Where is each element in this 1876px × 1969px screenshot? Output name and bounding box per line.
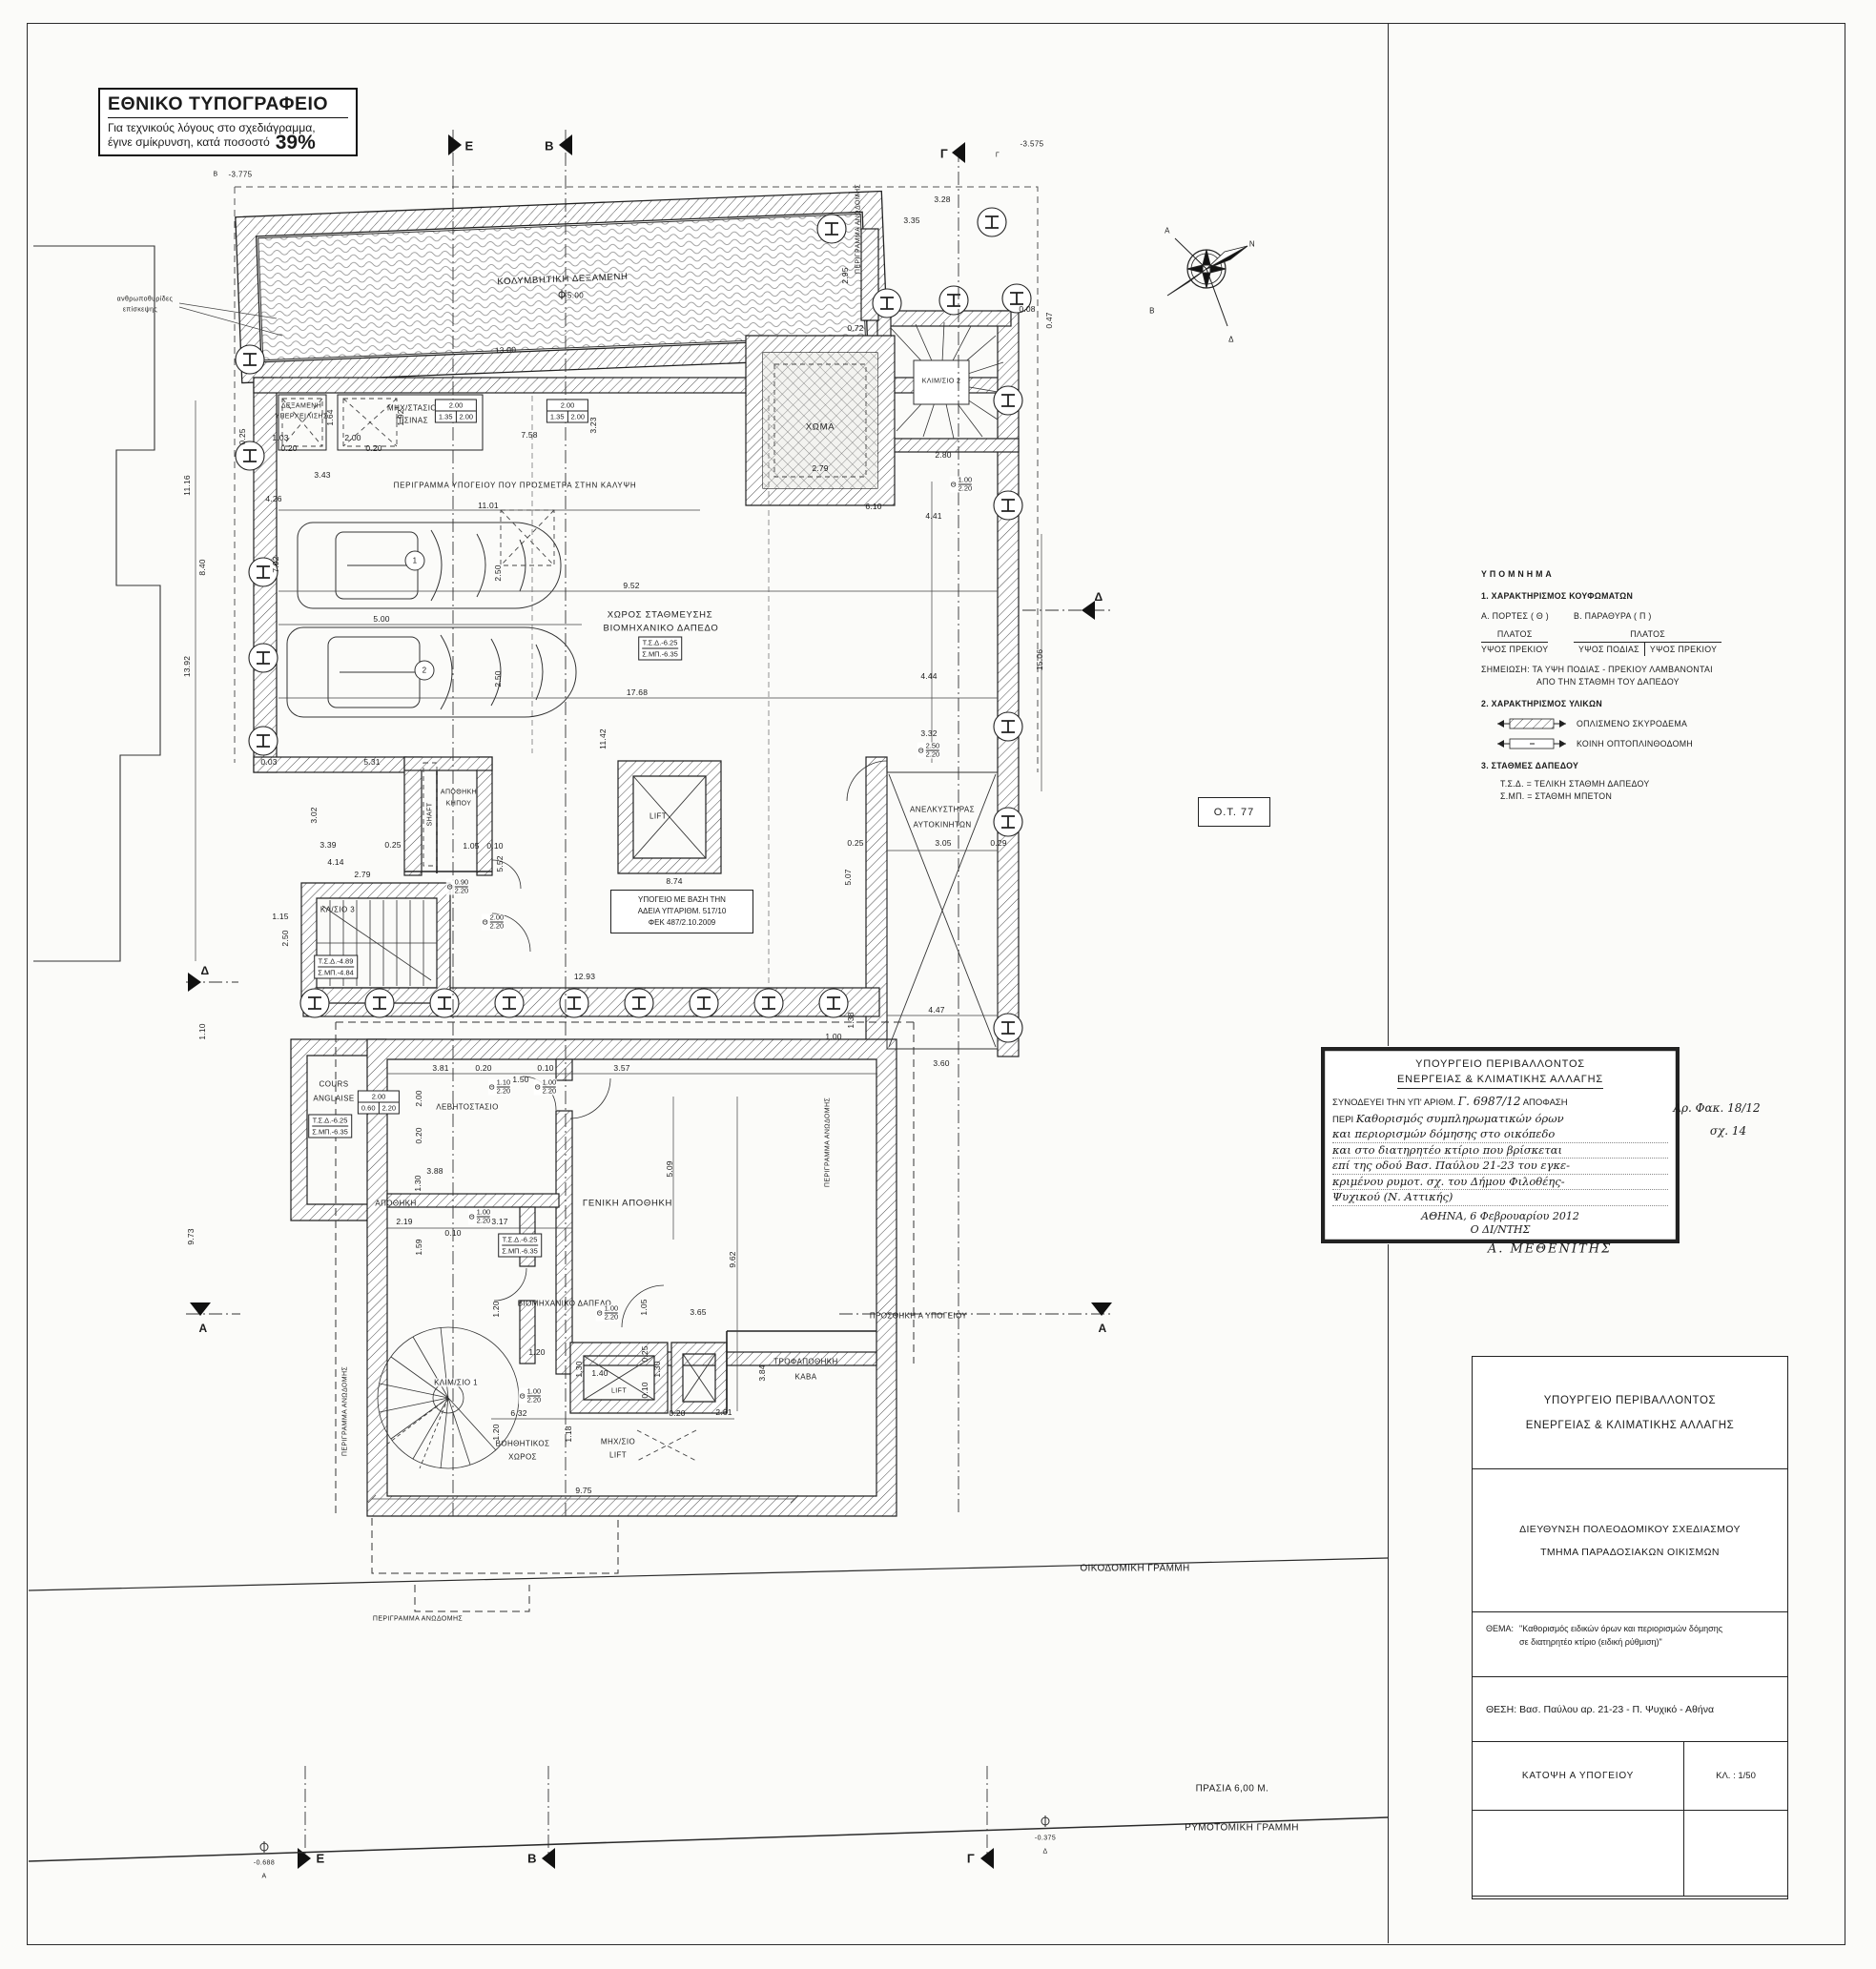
compass-letter-a: Α [1165,227,1170,236]
titleblock-dir2: ΤΜΗΜΑ ΠΑΡΑΔΟΣΙΑΚΩΝ ΟΙΚΙΣΜΩΝ [1540,1541,1720,1564]
compass-letter-d: Δ [1228,336,1234,344]
room-label-shaft: SHAFT [427,803,434,827]
dim-label: 0.10 [537,1063,553,1073]
legend-platos: ΠΛΑΤΟΣ [1574,628,1721,643]
dim-label: 5.00 [373,614,389,624]
room-label-tank2: ΥΠΕΡΧΕΙΛΙΣΗΣ [275,414,327,420]
room-label-pantry1: ΤΡΟΦΑΠΟΘΗΚΗ [773,1358,837,1366]
door-width: 1.00 [527,1388,542,1396]
dim-label: 3.60 [933,1058,949,1068]
corner-level-g: -3.575 [1020,140,1043,149]
dim-label: 2.00 [414,1090,423,1106]
dim-label: 4.44 [920,671,937,681]
drawing-title: ΚΑΤΟΨΗ Α ΥΠΟΓΕΙΟΥ [1473,1742,1684,1810]
dim-label: 15.06 [1035,649,1044,670]
stamp-pre: ΣΥΝΟΔΕΥΕΙ ΤΗΝ ΥΠ' ΑΡΙΘΜ. [1332,1097,1455,1108]
dim-label: 0.20 [414,1127,423,1143]
dim-label: 9.52 [623,581,639,590]
room-label-cours1: COURS [320,1080,349,1089]
door-width: 1.00 [959,477,973,484]
dim-label: 3.81 [432,1063,448,1073]
door-letter: Θ [483,918,488,926]
street-line-label: ΡΥΜΟΤΟΜΙΚΗ ΓΡΑΜΜΗ [1185,1823,1299,1834]
level-tsd: Τ.Σ.Δ.-6.25 [642,638,678,648]
dim-label: 9.62 [728,1251,737,1267]
compass-letter-b: Β [1149,307,1155,316]
stamp-org1: ΥΠΟΥΡΓΕΙΟ ΠΕΡΙΒΑΛΛΟΝΤΟΣ [1332,1056,1668,1072]
dim-label: 1.50 [512,1075,528,1084]
note-superstructure-outline: ΠΕΡΙΓΡΑΜΜΑ ΑΝΩΔΟΜΗΣ [373,1616,463,1623]
ministry-stamp: ΥΠΟΥΡΓΕΙΟ ΠΕΡΙΒΑΛΛΟΝΤΟΣ ΕΝΕΡΓΕΙΑΣ & ΚΛΙΜ… [1321,1047,1680,1243]
printshop-title: ΕΘΝΙΚΟ ΤΥΠΟΓΡΑΦΕΙΟ [108,93,348,118]
dim-label: 0.20 [280,443,297,453]
titleblock-dir1: ΔΙΕΥΘΥΝΣΗ ΠΟΛΕΟΔΟΜΙΚΟΥ ΣΧΕΔΙΑΣΜΟΥ [1519,1518,1741,1541]
dim-label: 3.32 [920,728,937,738]
door-height: 2.20 [527,1396,542,1405]
dim-label: 2.00 [344,433,361,442]
legend-sec1: 1. ΧΑΡΑΚΤΗΡΙΣΜΟΣ ΚΟΥΦΩΜΑΤΩΝ [1481,590,1767,603]
legend-title: ΥΠΟΜΝΗΜΑ [1481,568,1767,581]
dim-label: 0.03 [260,757,277,767]
dim-label: 1.64 [325,409,335,425]
titleblock-org2: ΕΝΕΡΓΕΙΑΣ & ΚΛΙΜΑΤΙΚΗΣ ΑΛΛΑΓΗΣ [1526,1413,1735,1438]
dim-label: 1.15 [272,912,288,921]
window-head: 2.00 [567,412,588,422]
legend-mat1: ΟΠΛΙΣΜΕΝΟ ΣΚΥΡΟΔΕΜΑ [1577,718,1687,730]
dim-label: 1.59 [414,1239,423,1255]
window-box: 2.00 1.352.00 [546,400,588,423]
dim-label: 3.65 [690,1307,706,1317]
door-letter: Θ [918,747,924,754]
note-outline-cover: ΠΕΡΙΓΡΑΜΜΑ ΥΠΟΓΕΙΟΥ ΠΟΥ ΠΡΟΣΜΕΤΡΑ ΣΤΗΝ Κ… [394,482,637,490]
room-label-mlift1: ΜΗΧ/ΣΙΟ [601,1438,635,1446]
room-label-pantry2: ΚΑΒΑ [795,1373,817,1382]
setback-label: ΠΡΑΣΙΑ 6,00 Μ. [1196,1784,1269,1795]
stamp-post: ΑΠΟΦΑΣΗ [1523,1097,1568,1108]
thema-line2: σε διατηρητέο κτίριο (ειδική ρύθμιση)" [1519,1637,1662,1647]
spot-letter-d: Δ [1042,1849,1047,1856]
door-letter: Θ [535,1083,541,1091]
dim-label: 1.92 [396,409,405,425]
section-letter-d-right: Δ [1094,590,1103,604]
window-sill: 0.60 [359,1103,379,1114]
thema-line1: "Καθορισμός ειδικών όρων και περιορισμών… [1519,1624,1722,1633]
corner-letter-b: Β [213,172,217,178]
door-tag: Θ1.002.20 [950,477,973,493]
dim-label: 1.05 [639,1299,649,1315]
door-letter: Θ [520,1392,526,1400]
room-label-lift2: LIFT [611,1388,627,1395]
door-height: 2.20 [477,1217,491,1225]
legend-mat2: ΚΟΙΝΗ ΟΠΤΟΠΛΙΝΘΟΔΟΜΗ [1577,738,1693,750]
dim-label: 0.10 [444,1228,461,1238]
window-head: 2.20 [379,1103,400,1114]
level-tsd: Τ.Σ.Δ.-6.25 [502,1235,538,1245]
room-label-soil: ΧΩΜΑ [806,422,835,433]
parking-spot-1: 1 [413,557,418,565]
dim-label: 1.05 [463,841,479,851]
door-width: 2.50 [926,743,940,750]
dim-label: 2.95 [840,267,850,283]
drawing-scale: ΚΛ. : 1/50 [1684,1742,1787,1810]
dim-label: 2.19 [396,1217,412,1226]
note-addition: ΠΡΟΣΘΗΚΗ Α ΥΠΟΓΕΙΟΥ [870,1312,967,1321]
dim-label: 2.50 [493,670,503,687]
dim-label: 0.72 [847,323,863,333]
dim-label: 3.39 [320,840,336,850]
level-smp: Σ.ΜΠ.-4.84 [318,967,354,978]
stamp-hw4: επί της οδού Βασ. Παύλου 21-23 του εγκε- [1332,1159,1668,1175]
note-manholes1: ανθρωποθυρίδες [117,297,174,303]
room-label-stair3: ΚΛ/ΣΙΟ 3 [320,906,355,914]
dim-label: 9.75 [575,1486,591,1495]
spot-letter-a: Α [261,1874,266,1880]
thema-label: ΘΕΜΑ: [1486,1622,1514,1649]
dim-label: 0.10 [640,1382,649,1398]
dim-label: 0.20 [669,1408,685,1418]
dim-label: 5.52 [495,855,505,872]
thesi-label: ΘΕΣΗ: [1486,1704,1516,1715]
room-label-parking2: ΒΙΟΜΗΧΑΝΙΚΟ ΔΑΠΕΔΟ [604,624,719,634]
dim-label: 1.40 [591,1368,608,1378]
dim-label: 2.79 [812,463,828,473]
level-tsd: Τ.Σ.Δ.-4.89 [318,956,354,967]
dim-label: 8.74 [666,876,682,886]
dim-label: 0.29 [990,838,1006,848]
dim-label: 5.31 [363,757,380,767]
legend-note2: ΑΠΟ ΤΗΝ ΣΤΑΘΜΗ ΤΟΥ ΔΑΠΕΔΟΥ [1481,676,1767,688]
door-letter: Θ [597,1309,603,1317]
dim-label: 11.01 [478,501,499,510]
door-letter: Θ [951,481,957,488]
stamp-hw5: κριμένου ρυμοτ. σχ. του Δήμου Φιλοθέης- [1332,1175,1668,1191]
thesi-value: Βασ. Παύλου αρ. 21-23 - Π. Ψυχικό - Αθήν… [1519,1704,1714,1715]
stamp-hw2: και περιορισμών δόμησης στο οικόπεδο [1332,1127,1668,1143]
titleblock-empty-right [1684,1811,1787,1896]
dim-label: 1.03 [272,433,288,442]
room-label-garden2: ΚΗΠΟΥ [446,801,472,808]
door-height: 2.20 [543,1087,557,1096]
dim-label: 3.02 [309,807,319,823]
dim-label: 13.92 [182,656,192,677]
window-box: 2.00 0.602.20 [358,1091,400,1115]
dim-label: 2.80 [935,450,951,460]
room-label-stair1: ΚΛΙΜ/ΣΙΟ 1 [434,1379,478,1387]
legend-sec3: 3. ΣΤΑΘΜΕΣ ΔΑΠΕΔΟΥ [1481,760,1767,772]
dim-label: 11.16 [182,475,192,496]
drawing-sheet: ΕΘΝΙΚΟ ΤΥΠΟΓΡΑΦΕΙΟ Για τεχνικούς λόγους … [0,0,1876,1969]
window-head: 2.00 [456,412,477,422]
file-folder-ref: Αρ. Φακ. 18/12 [1673,1101,1760,1115]
dim-label: 4.14 [327,857,343,867]
door-letter: Θ [489,1083,495,1091]
room-label-garden1: ΑΠΟΘΗΚΗ [441,790,477,796]
dim-label: 4.26 [265,494,281,503]
margin-divider [1388,23,1389,1943]
door-tag: Θ1.002.20 [519,1388,542,1405]
legend-note1: ΣΗΜΕΙΩΣΗ: ΤΑ ΥΨΗ ΠΟΔΙΑΣ - ΠΡΕΚΙΟΥ ΛΑΜΒΑΝ… [1481,664,1767,676]
permit-line2: ΑΔΕΙΑ ΥΠ'ΑΡΙΘΜ. 517/10 [617,906,747,917]
printshop-stamp: ΕΘΝΙΚΟ ΤΥΠΟΓΡΑΦΕΙΟ Για τεχνικούς λόγους … [98,88,358,156]
note-manholes2: επίσκεψης [123,307,157,314]
dim-label: 6.32 [510,1408,526,1418]
dim-label: 0.08 [1019,304,1035,314]
dim-label: 0.25 [237,428,247,444]
dim-label: 3.35 [903,215,919,225]
dim-label: 1.30 [652,1361,662,1377]
corner-letter-g: Γ [996,153,1000,159]
room-label-mech1: ΜΗΧ/ΣΤΑΣΙΟ [387,404,437,413]
city-block-label: Ο.Τ. 77 [1214,807,1254,818]
dim-label: 9.73 [186,1228,196,1244]
window-sill: 1.35 [436,412,456,422]
dim-label: 7.58 [521,430,537,440]
room-label-carlift1: ΑΝΕΛΚΥΣΤΗΡΑΣ [910,806,975,814]
door-height: 2.20 [490,922,505,931]
level-box-lower: Τ.Σ.Δ.-6.25 Σ.ΜΠ.-6.35 [498,1234,542,1258]
door-tag: Θ1.002.20 [468,1209,491,1225]
dim-label: 5.07 [843,869,853,885]
dim-label: 2.61 [715,1407,732,1417]
dim-label: 0.47 [1044,312,1054,328]
dim-label: 1.20 [491,1424,501,1440]
dim-label: 1.10 [197,1023,207,1039]
stamp-role: Ο ΔΙ/ΝΤΗΣ [1332,1223,1668,1236]
room-label-stair2: ΚΛΙΜ/ΣΙΟ 2 [922,379,961,385]
note-superstructure-outline: ΠΕΡΙΓΡΑΜΜΑ ΑΝΩΔΟΜΗΣ [342,1366,349,1456]
door-width: 1.00 [605,1305,619,1313]
dim-label: 0.25 [384,840,401,850]
dim-label: 3.05 [935,838,951,848]
permit-note-box: ΥΠΟΓΕΙΟ ΜΕ ΒΑΣΗ ΤΗΝ ΑΔΕΙΑ ΥΠ'ΑΡΙΘΜ. 517/… [610,890,753,933]
dim-label: 13.00 [495,345,517,356]
window-sill: 1.35 [547,412,567,422]
door-width: 2.00 [490,914,505,922]
building-line-label: ΟΙΚΟΔΟΜΙΚΗ ΓΡΑΜΜΗ [1080,1564,1189,1574]
door-height: 2.20 [926,750,940,759]
level-box-garage: Τ.Σ.Δ.-6.25 Σ.ΜΠ.-6.35 [638,637,682,661]
dim-label: 1.38 [846,1012,856,1028]
dim-label: 0.25 [847,838,863,848]
stamp-date: ΑΘΗΝΑ, 6 Φεβρουαρίου 2012 [1332,1210,1668,1222]
level-smp: Σ.ΜΠ.-6.35 [642,648,678,660]
door-height: 2.20 [497,1087,511,1096]
permit-line3: ΦΕΚ 487/2.10.2009 [617,917,747,929]
room-label-lift: LIFT [649,812,667,821]
title-block: ΥΠΟΥΡΓΕΙΟ ΠΕΡΙΒΑΛΛΟΝΤΟΣ ΕΝΕΡΓΕΙΑΣ & ΚΛΙΜ… [1472,1356,1788,1899]
room-label-carlift2: ΑΥΤΟΚΙΝΗΤΩΝ [913,821,971,830]
dim-label: 1.30 [413,1175,423,1191]
door-tag: Θ1.002.20 [596,1305,619,1322]
door-height: 2.20 [959,484,973,493]
spot-level-a: -0.688 [254,1860,275,1867]
dim-label: 2.79 [354,870,370,879]
dim-label: 3.23 [588,417,598,433]
section-letter-g-top: Γ [940,147,948,161]
dim-label: 1.20 [491,1301,501,1317]
level-tsd: Τ.Σ.Δ.-6.25 [312,1116,348,1126]
section-letter-d-left: Δ [200,964,209,977]
door-width: 1.10 [497,1079,511,1087]
stamp-hw6: Ψυχικού (Ν. Αττικής) [1332,1190,1668,1206]
door-height: 2.20 [455,887,469,895]
dim-label: 3.43 [314,470,330,480]
window-width: 2.00 [359,1092,399,1103]
legend-platos: ΠΛΑΤΟΣ [1481,628,1548,643]
section-letter-a-right: Α [1098,1322,1106,1335]
brick-symbol-icon [1496,737,1567,750]
note-superstructure-outline: ΠΕΡΙΓΡΑΜΜΑ ΑΝΩΔΟΜΗΣ [825,1097,832,1187]
room-label-aux1: ΒΟΗΘΗΤΙΚΟΣ [496,1440,550,1448]
legend-lvl1: Τ.Σ.Δ. = ΤΕΛΙΚΗ ΣΤΑΘΜΗ ΔΑΠΕΔΟΥ [1481,778,1767,790]
stamp-peri: ΠΕΡΙ [1332,1115,1353,1125]
dim-label: 4.41 [925,511,941,521]
dim-label: 1.00 [825,1032,841,1041]
legend-sec2: 2. ΧΑΡΑΚΤΗΡΙΣΜΟΣ ΥΛΙΚΩΝ [1481,698,1767,710]
dim-label: 12.93 [574,972,595,981]
level-smp: Σ.ΜΠ.-6.35 [312,1126,348,1138]
stamp-hw3: και στο διατηρητέο κτίριο που βρίσκεται [1332,1143,1668,1159]
room-label-storage: ΑΠΟΘΗΚΗ [375,1200,416,1208]
stamp-signature: Α. ΜΕΘΕΝΙΤΗΣ [1488,1242,1612,1257]
window-width: 2.00 [547,400,588,412]
concrete-symbol-icon [1496,717,1567,730]
section-letter-a-left: Α [198,1322,207,1335]
room-label-aux2: ΧΩΡΟΣ [508,1453,537,1462]
dim-label: 0.25 [640,1345,649,1362]
city-block-box: Ο.Τ. 77 [1198,797,1270,827]
room-label-cours2: ANGLAISE [313,1095,354,1103]
section-letter-g-bottom: Γ [967,1852,975,1866]
level-box-cours: Τ.Σ.Δ.-6.25 Σ.ΜΠ.-6.35 [308,1115,352,1138]
door-letter: Θ [469,1213,475,1220]
dim-label: 5.09 [665,1160,674,1177]
level-smp: Σ.ΜΠ.-6.35 [502,1245,538,1257]
dim-label: 4.47 [928,1005,944,1015]
spot-level-d: -0.375 [1035,1836,1056,1842]
dim-label: 11.42 [598,728,608,749]
printshop-line2: έγινε σμίκρυνση, κατά ποσοστό [108,135,270,149]
room-label-tank1: ΔΕΞΑΜΕΝΗ [281,403,321,410]
file-sheet-ref: σχ. 14 [1710,1124,1746,1138]
door-tag: Θ2.002.20 [482,914,505,931]
dim-label: 6.10 [865,502,881,511]
corner-level-b: -3.775 [228,171,252,179]
pool-level: -5.00 [565,292,584,300]
dim-label: 1.30 [574,1361,584,1377]
note-superstructure-outline: ΠΕΡΙΓΡΑΜΜΑ ΑΝΩΔΟΜΗΣ [856,184,862,274]
dim-label: 17.68 [627,687,648,697]
legend-ypsos-podias: ΥΨΟΣ ΠΟΔΙΑΣ [1574,643,1644,656]
dim-label: 2.50 [493,564,503,581]
level-box-stair3: Τ.Σ.Δ.-4.89 Σ.ΜΠ.-4.84 [314,955,358,979]
door-tag: Θ1.102.20 [488,1079,511,1096]
dim-label: 3.84 [757,1364,767,1381]
section-letter-e-bottom: Ε [316,1852,324,1866]
dim-label: 3.57 [613,1063,629,1073]
dim-label: 1.18 [564,1425,573,1442]
door-width: 1.00 [543,1079,557,1087]
dim-label: 3.28 [934,195,950,204]
door-width: 0.90 [455,879,469,887]
section-letter-e-top: Ε [464,139,473,154]
titleblock-empty-left [1473,1811,1684,1896]
room-label-parking1: ΧΩΡΟΣ ΣΤΑΘΜΕΥΣΗΣ [608,610,713,621]
compass-letter-n: Ν [1249,240,1255,249]
door-tag: Θ0.902.20 [446,879,469,895]
dim-label: 0.20 [365,443,381,453]
window-box: 2.00 1.352.00 [435,400,477,423]
door-tag: Θ1.002.20 [534,1079,557,1096]
room-label-mlift2: LIFT [609,1451,627,1460]
permit-line1: ΥΠΟΓΕΙΟ ΜΕ ΒΑΣΗ ΤΗΝ [617,894,747,906]
parking-spot-2: 2 [423,667,427,675]
window-width: 2.00 [436,400,476,412]
stamp-hw1: Καθορισμός συμπληρωματικών όρων [1356,1112,1564,1125]
legend: ΥΠΟΜΝΗΜΑ 1. ΧΑΡΑΚΤΗΡΙΣΜΟΣ ΚΟΥΦΩΜΑΤΩΝ Α. … [1481,568,1767,803]
stamp-org2: ΕΝΕΡΓΕΙΑΣ & ΚΛΙΜΑΤΙΚΗΣ ΑΛΛΑΓΗΣ [1397,1072,1603,1089]
stamp-decision-number: Γ. 6987/12 [1458,1095,1521,1108]
legend-windows-heading: Β. ΠΑΡΑΘΥΡΑ ( Π ) [1574,610,1721,623]
dim-label: 0.20 [475,1063,491,1073]
dim-label: 3.17 [491,1217,507,1226]
door-height: 2.20 [605,1313,619,1322]
room-label-general: ΓΕΝΙΚΗ ΑΠΟΘΗΚΗ [583,1199,672,1209]
dim-label: 3.88 [426,1166,443,1176]
dim-label: 8.40 [197,559,207,575]
section-letter-b-top: Β [545,139,554,154]
dim-label: 1.20 [528,1347,545,1357]
legend-doors-heading: Α. ΠΟΡΤΕΣ ( Θ ) [1481,610,1549,623]
legend-ypsos-prekiou: ΥΨΟΣ ΠΡΕΚΙΟΥ [1644,643,1721,656]
door-letter: Θ [447,883,453,891]
titleblock-org1: ΥΠΟΥΡΓΕΙΟ ΠΕΡΙΒΑΛΛΟΝΤΟΣ [1544,1388,1716,1413]
dim-label: 0.10 [486,841,503,851]
door-tag: Θ2.502.20 [917,743,940,759]
dim-label: 2.50 [280,930,290,946]
dim-label: 7.92 [271,556,280,572]
printshop-percent: 39% [276,132,316,154]
section-letter-b-bottom: Β [527,1852,537,1866]
legend-lvl2: Σ.ΜΠ. = ΣΤΑΘΜΗ ΜΠΕΤΟΝ [1481,790,1767,803]
door-width: 1.00 [477,1209,491,1217]
legend-ypsos-prekiou: ΥΨΟΣ ΠΡΕΚΙΟΥ [1481,643,1548,656]
room-label-boiler: ΛΕΒΗΤΟΣΤΑΣΙΟ [436,1103,499,1112]
